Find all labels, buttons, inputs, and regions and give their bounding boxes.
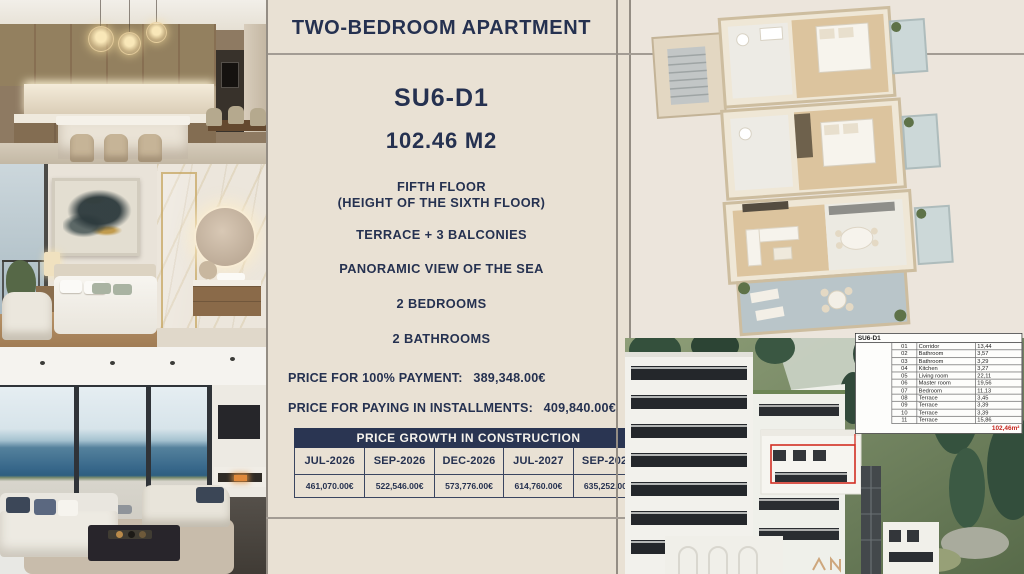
bathtub: [760, 27, 783, 41]
price-installments-value: 409,840.00€: [544, 401, 616, 415]
table-row: 04Kitchen3,27: [856, 365, 1022, 372]
unit-area: 102.46 M2: [267, 128, 616, 154]
bathroom-2-floor: [730, 115, 793, 191]
table-row: 09Terrace3,39: [856, 402, 1022, 409]
pendant-cord: [129, 0, 130, 32]
pendant-light: [146, 22, 167, 43]
price-installments-label: PRICE FOR PAYING IN INSTALLMENTS:: [288, 401, 533, 415]
table-row: 05Living room22,11: [856, 372, 1022, 379]
bathroom-floor: [157, 328, 266, 347]
pillow: [60, 280, 82, 293]
highlighted-unit-block: [761, 430, 861, 494]
dining-chair: [206, 108, 222, 126]
growth-column-header: JUL-2026: [295, 448, 364, 474]
price-growth-grid: JUL-2026 SEP-2026 DEC-2026 JUL-2027 SEP-…: [294, 448, 643, 498]
growth-column-header: SEP-2026: [364, 448, 433, 474]
lower-right-building: [883, 522, 939, 574]
feature-bathrooms: 2 BATHROOMS: [267, 331, 616, 346]
table-row: 06Master room19,56: [856, 380, 1022, 387]
table-row: 07Bedroom11,13: [856, 387, 1022, 394]
sage-pillow: [113, 284, 132, 295]
table-row: 02Bathroom3,57: [856, 350, 1022, 357]
chaise-cushion: [196, 487, 224, 503]
page-title: TWO-BEDROOM APARTMENT: [267, 17, 616, 40]
table-row: 01Corridor13,44: [856, 343, 1022, 350]
price-growth-table: PRICE GROWTH IN CONSTRUCTION JUL-2026 SE…: [294, 428, 643, 498]
bottom-divider-rule: [266, 517, 626, 519]
bathroom-photo: [157, 164, 266, 347]
unit-code: SU6-D1: [267, 84, 616, 113]
panel-right-border: [616, 0, 618, 574]
kitchen-island-top: [56, 116, 190, 125]
growth-value: 461,070.00€: [295, 474, 364, 497]
decor-item: [139, 531, 146, 538]
sofa-chaise: [746, 229, 761, 266]
sofa-cushion: [6, 497, 30, 513]
growth-value: 614,760.00€: [503, 474, 572, 497]
wardrobe: [794, 113, 813, 158]
price-full-value: 389,348.00€: [473, 371, 545, 385]
living-ceiling: [0, 347, 266, 385]
toilet: [736, 33, 749, 46]
dining-chair: [228, 106, 244, 124]
growth-value: 573,776.00€: [434, 474, 503, 497]
feature-floor-note: (HEIGHT OF THE SIXTH FLOOR): [267, 195, 616, 210]
kitchen-backsplash: [24, 84, 214, 116]
bar-stool: [104, 134, 128, 162]
bedroom-photo: [0, 164, 157, 347]
panel-left-border: [266, 0, 268, 574]
coffee-table: [773, 247, 792, 260]
feature-terrace: TERRACE + 3 BALCONIES: [267, 227, 616, 242]
wood-vanity: [193, 286, 261, 316]
sage-pillow: [92, 283, 111, 294]
pendant-light: [118, 32, 141, 55]
ceiling-spotlight: [40, 361, 45, 365]
room-table-total-area: 102,46m²: [856, 424, 1022, 433]
brochure-page: TWO-BEDROOM APARTMENT SU6-D1 102.46 M2 F…: [0, 0, 1024, 574]
bar-stool: [70, 134, 94, 162]
decor-item: [128, 531, 135, 538]
growth-column-header: JUL-2027: [503, 448, 572, 474]
abstract-artwork: [52, 178, 140, 256]
fireplace-flame: [234, 475, 247, 481]
ceiling-spotlight: [110, 361, 115, 365]
pendant-cord: [156, 0, 157, 22]
price-full-label: PRICE FOR 100% PAYMENT:: [288, 371, 463, 385]
dining-chair: [250, 108, 266, 126]
shower-glass: [161, 172, 197, 336]
info-panel: TWO-BEDROOM APARTMENT SU6-D1 102.46 M2 F…: [267, 0, 616, 574]
toilet: [739, 127, 752, 140]
feature-floor: FIFTH FLOOR: [267, 179, 616, 194]
oven: [221, 62, 239, 88]
price-growth-title: PRICE GROWTH IN CONSTRUCTION: [294, 428, 643, 448]
room-table-header: SU6-D1: [856, 334, 1022, 343]
feature-bedrooms: 2 BEDROOMS: [267, 296, 616, 311]
feature-view: PANORAMIC VIEW OF THE SEA: [267, 261, 616, 276]
living-room-photo: [0, 347, 266, 574]
price-full-payment: PRICE FOR 100% PAYMENT: 389,348.00€: [288, 371, 637, 385]
decor-item: [116, 531, 123, 538]
vase-flowers: [199, 261, 217, 279]
kitchen-photo: [0, 0, 266, 164]
lounge-chair: [2, 292, 52, 340]
ceiling-spotlight: [170, 361, 175, 365]
elevator-tower: [861, 466, 881, 574]
tv-screen: [218, 405, 260, 439]
ceiling-spotlight: [230, 357, 235, 361]
table-row: 08Terrace3,45: [856, 395, 1022, 402]
pendant-light: [88, 26, 114, 52]
room-area-table: SU6-D1 01Corridor13,44 02Bathroom3,57 03…: [855, 333, 1022, 434]
terrace: [738, 271, 909, 335]
arched-facade: [665, 536, 783, 574]
table-row: 10Terrace3,39: [856, 409, 1022, 416]
growth-value: 522,546.00€: [364, 474, 433, 497]
pendant-cord: [100, 0, 101, 26]
price-installments: PRICE FOR PAYING IN INSTALLMENTS: 409,84…: [288, 401, 637, 415]
floor-plan-render: [630, 0, 1024, 342]
bar-stool: [138, 134, 162, 162]
growth-column-header: DEC-2026: [434, 448, 503, 474]
table-row: 03Bathroom3,29: [856, 358, 1022, 365]
table-row: 11Terrace15,86: [856, 417, 1022, 424]
sofa-cushion: [58, 500, 78, 516]
sofa-cushion: [34, 499, 56, 515]
round-backlit-mirror: [194, 206, 256, 268]
